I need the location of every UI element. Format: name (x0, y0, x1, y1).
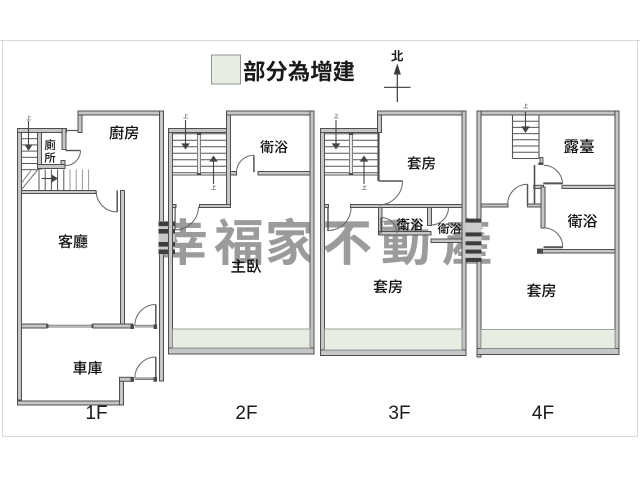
svg-text:2F: 2F (235, 403, 257, 424)
svg-text:1F: 1F (85, 403, 107, 424)
svg-text:3F: 3F (388, 403, 410, 424)
svg-text:4F: 4F (532, 403, 554, 424)
